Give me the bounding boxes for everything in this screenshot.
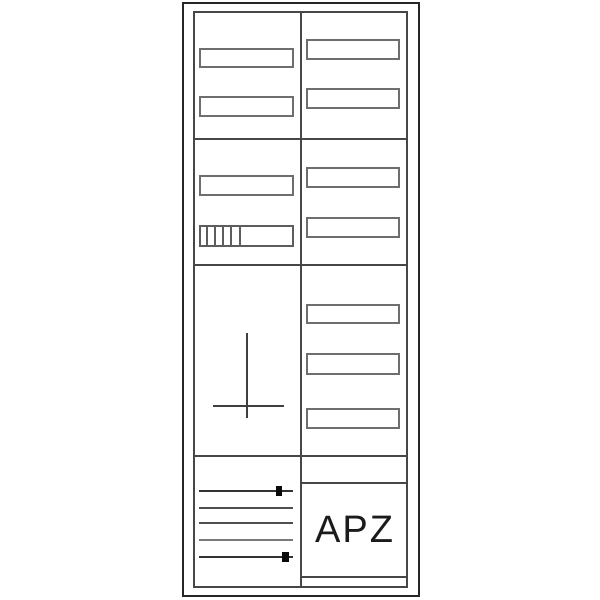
section-divider-1: [193, 138, 408, 140]
blank-cover-slot: [199, 175, 294, 196]
module-segment-divider: [239, 227, 241, 245]
terminal-wire-line: [199, 522, 293, 524]
blank-cover-slot: [306, 88, 400, 109]
meter-cabinet-diagram: APZ: [0, 0, 600, 600]
module-segment-divider: [206, 227, 208, 245]
apz-area: APZ: [302, 482, 408, 578]
module-segment-divider: [230, 227, 232, 245]
module-segment-divider: [214, 227, 216, 245]
blank-cover-slot: [306, 167, 400, 188]
section-divider-3: [193, 455, 408, 457]
blank-cover-slot: [199, 48, 294, 68]
apz-label: APZ: [315, 511, 395, 549]
terminal-wire-line: [199, 556, 293, 558]
blank-cover-slot: [306, 39, 400, 60]
blank-cover-slot: [199, 96, 294, 117]
blank-cover-slot: [306, 408, 400, 429]
section-divider-2: [193, 264, 408, 266]
blank-cover-slot: [306, 304, 400, 324]
blank-cover-slot: [306, 353, 400, 375]
terminal-marker: [276, 486, 282, 496]
module-segment-divider: [222, 227, 224, 245]
module-row: [199, 225, 294, 247]
cross-horizontal-line: [213, 405, 284, 407]
blank-cover-slot: [306, 217, 400, 238]
terminal-wire-line: [199, 539, 293, 541]
terminal-wire-line: [199, 507, 293, 509]
terminal-marker: [282, 552, 289, 562]
